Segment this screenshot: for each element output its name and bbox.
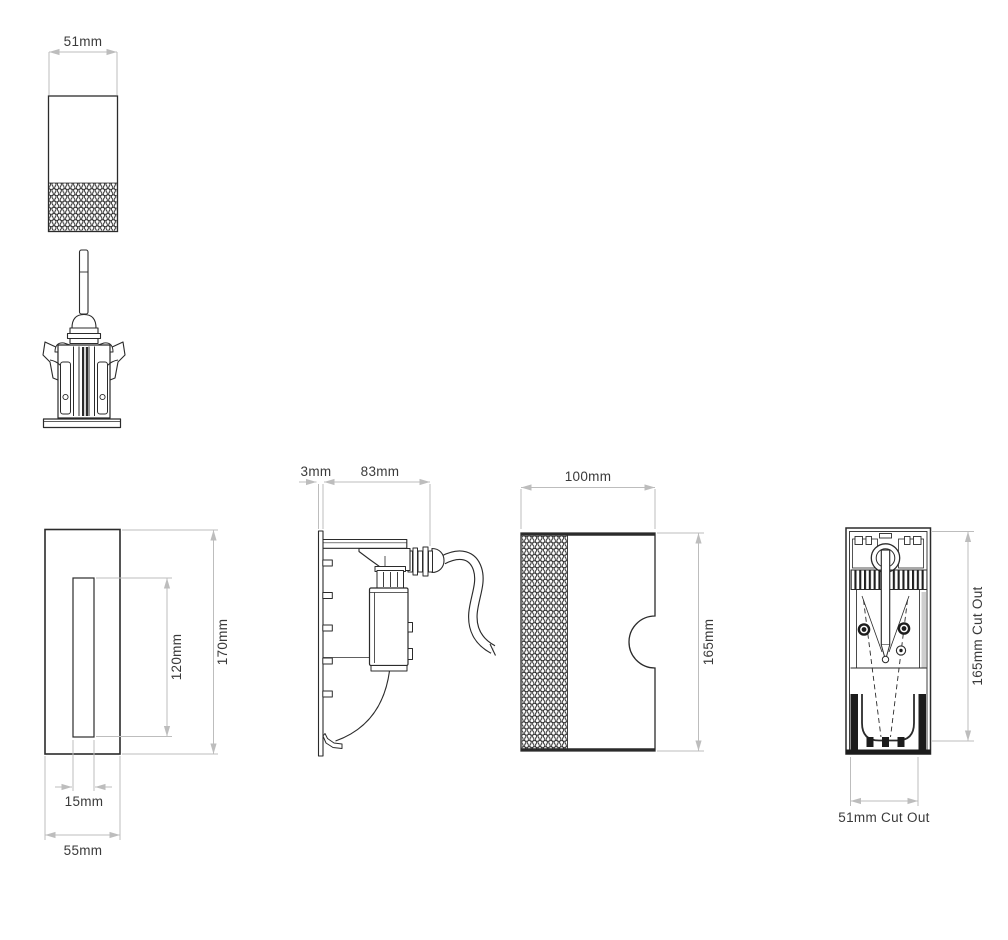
dim-side-faceplate-thickness: 3mm <box>299 464 331 529</box>
side-driver-box <box>370 588 409 666</box>
dim-label-front-aperture-width: 15mm <box>65 794 104 809</box>
view-body-elevation: 100mm 165mm <box>521 469 716 751</box>
dim-side-recess-depth: 83mm <box>324 464 430 546</box>
dim-rear-cutout-width: 51mm Cut Out <box>838 757 929 825</box>
dim-label-side-faceplate-thickness: 3mm <box>301 464 332 479</box>
side-faceplate-tabs <box>323 560 333 697</box>
rear-screw-right <box>898 622 911 635</box>
dim-label-top-width: 51mm <box>64 34 103 49</box>
dim-top-width: 51mm <box>49 34 117 95</box>
side-top-bar <box>323 540 407 549</box>
dim-label-rear-cutout-width: 51mm Cut Out <box>838 810 929 825</box>
view-lamp-holder-assembly <box>43 250 125 428</box>
view-side-elevation: 3mm 83mm <box>299 464 496 756</box>
front-aperture-slot <box>73 578 94 737</box>
lamp-screw-hole-left <box>63 394 68 399</box>
dim-body-width: 100mm <box>521 469 655 529</box>
dim-label-body-width: 100mm <box>565 469 612 484</box>
lamp-base-plate <box>44 419 121 428</box>
side-cable <box>443 555 496 655</box>
dim-label-front-overall-width: 55mm <box>64 843 103 858</box>
view-top-elevation: 51mm <box>49 34 118 232</box>
dim-label-front-overall-height: 170mm <box>215 619 230 666</box>
technical-drawing-sheet: 51mm <box>0 0 1008 940</box>
dim-label-rear-cutout-height: 165mm Cut Out <box>970 586 985 685</box>
dim-body-height: 165mm <box>657 533 716 751</box>
rear-center-stem <box>881 550 889 663</box>
dimension-drawing-canvas: 51mm <box>0 0 1008 940</box>
side-faceplate-foot <box>323 734 342 749</box>
rear-screw-left <box>858 623 871 636</box>
lamp-connector-dome <box>72 315 96 329</box>
top-perforated-area <box>49 183 116 231</box>
dim-label-side-recess-depth: 83mm <box>361 464 400 479</box>
dim-rear-cutout-height: 165mm Cut Out <box>932 532 985 742</box>
dim-label-front-aperture-height: 120mm <box>169 634 184 681</box>
lamp-screw-hole-right <box>100 394 105 399</box>
side-swing-arc <box>336 671 390 741</box>
dim-label-body-height: 165mm <box>701 619 716 666</box>
lamp-stem <box>80 250 89 314</box>
side-cable-gland <box>408 547 444 576</box>
view-rear-cutout: 165mm Cut Out 51mm Cut Out <box>838 528 985 825</box>
body-perforated-area <box>522 536 568 750</box>
view-front-elevation: 170mm 120mm 15mm 55mm <box>45 530 230 859</box>
rear-screw-small <box>896 646 905 655</box>
